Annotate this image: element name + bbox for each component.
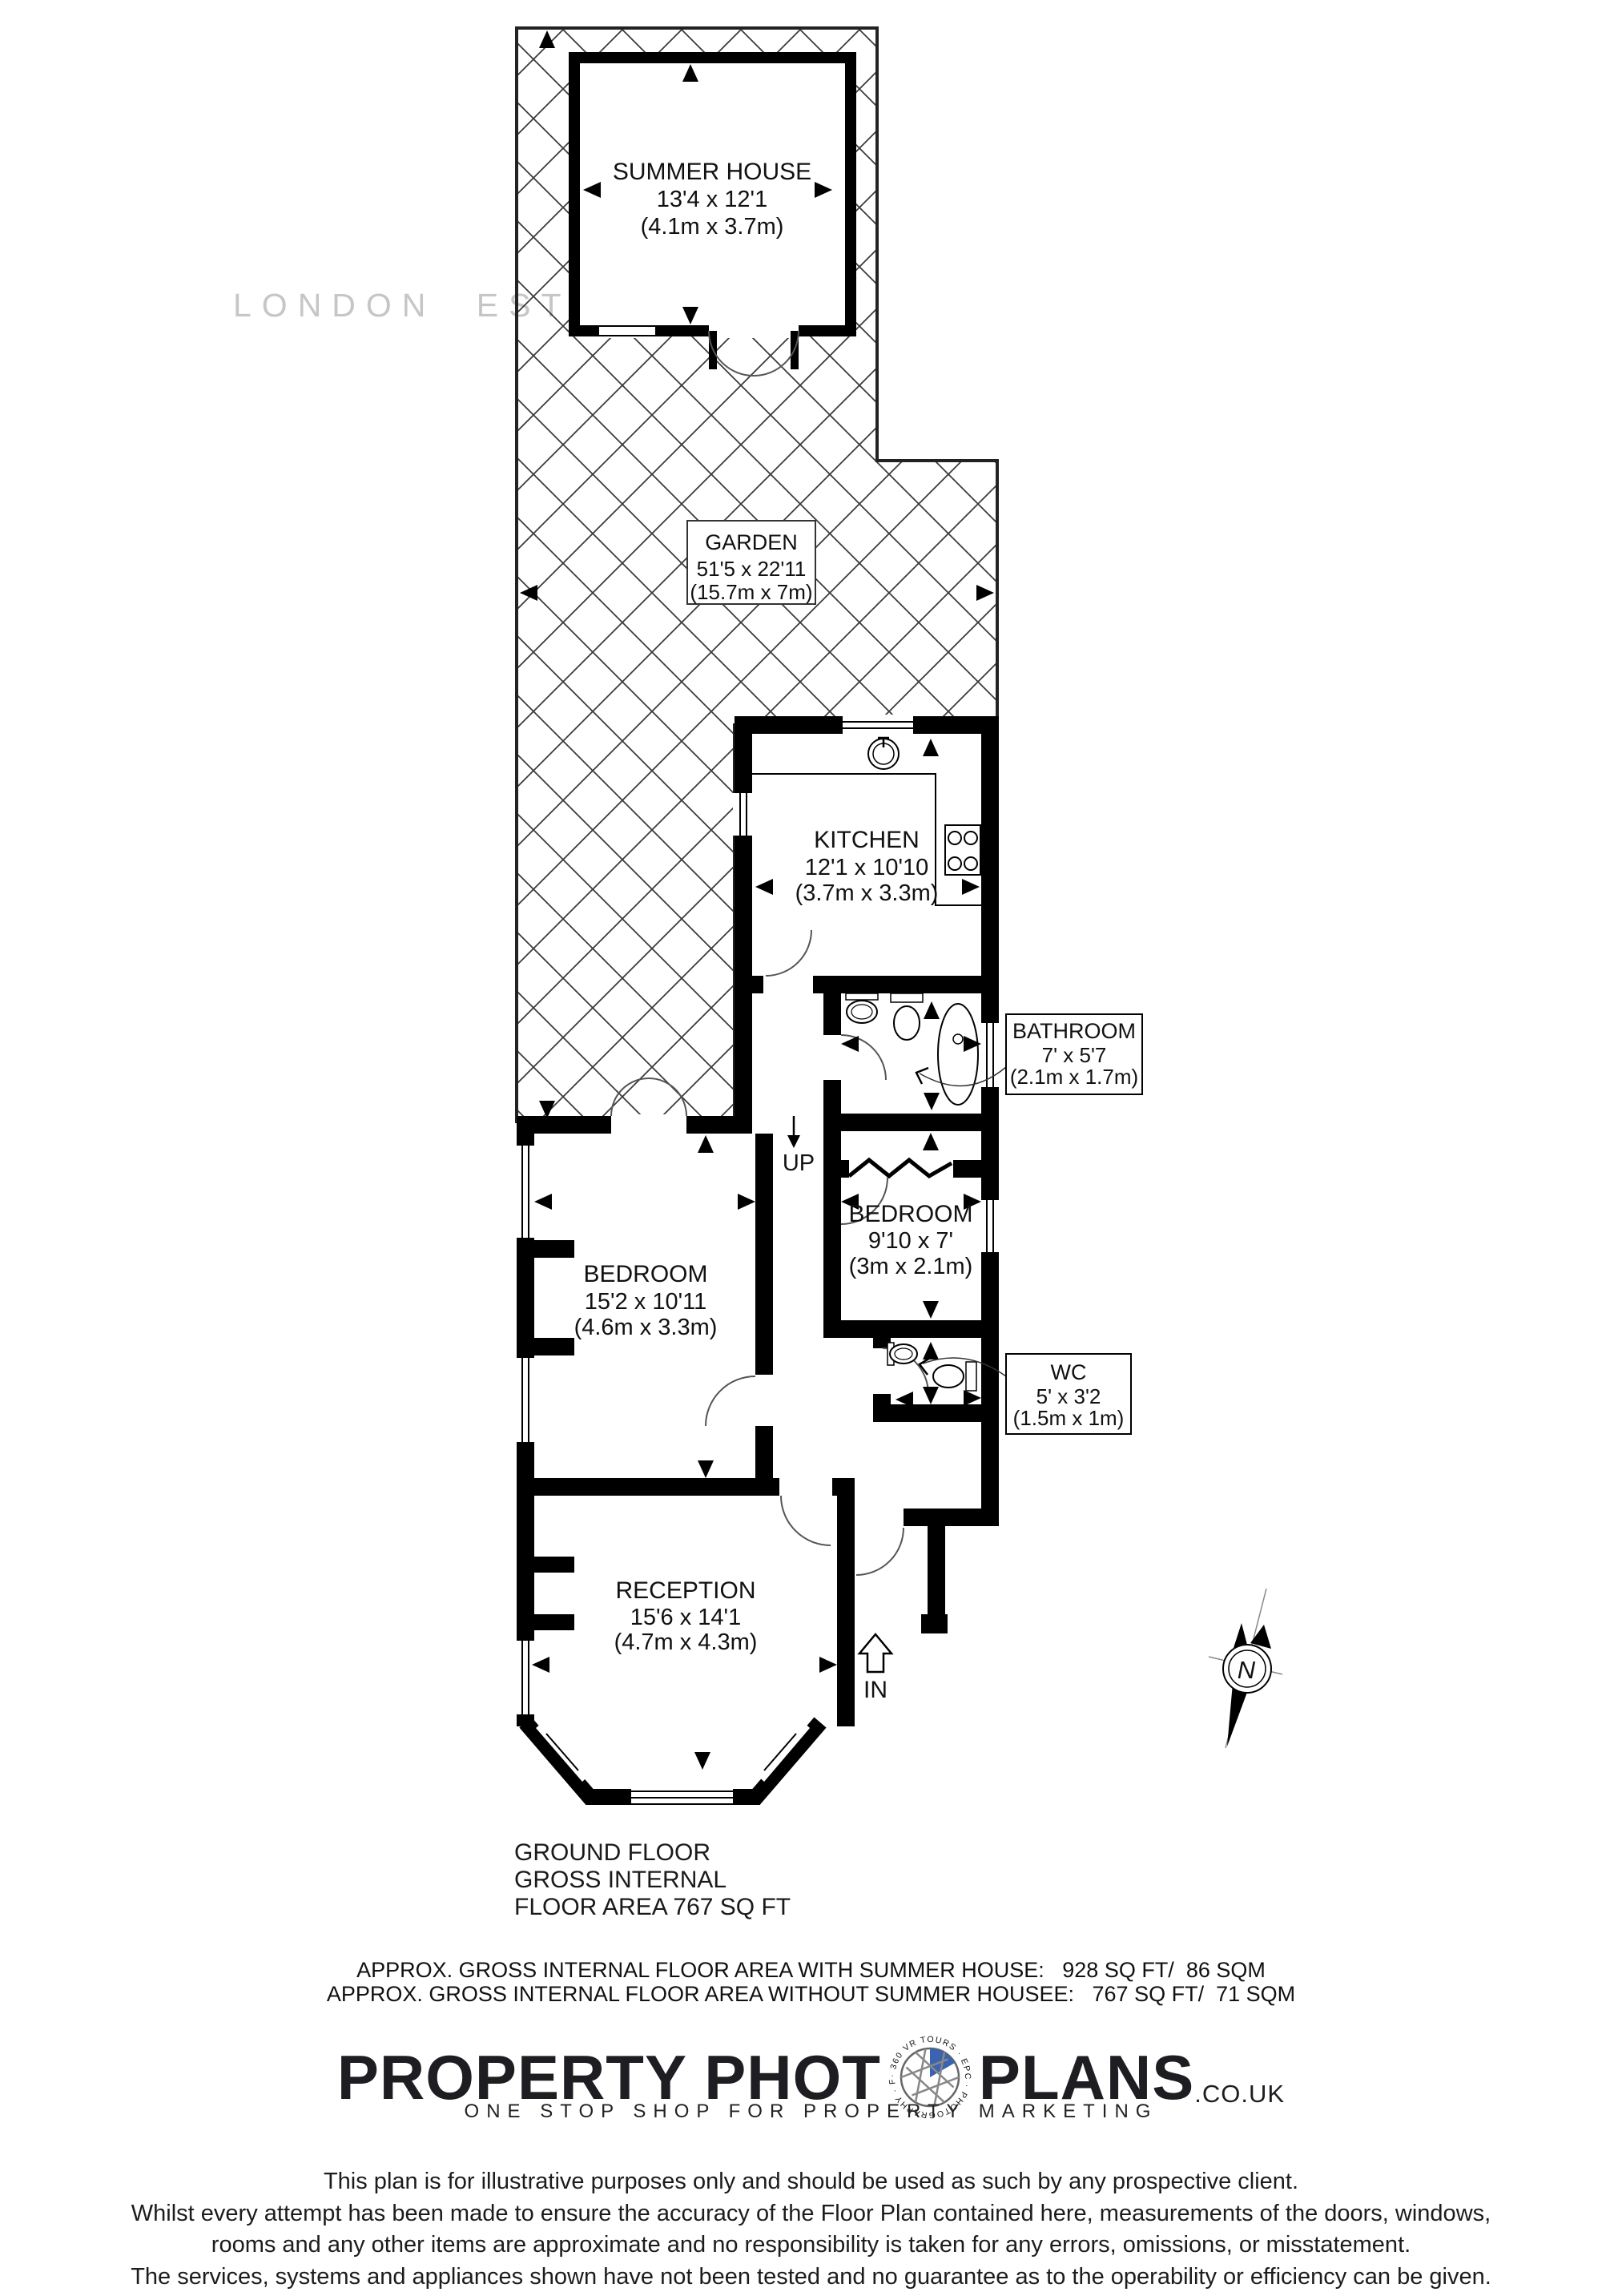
- bedroom-large-dims-ft: 15'2 x 10'11: [585, 1289, 706, 1315]
- bedroom-small-window: [980, 1200, 1000, 1252]
- bedroom-large-dims-m: (4.6m x 3.3m): [574, 1315, 718, 1340]
- bathroom-sink-icon: [846, 993, 878, 1023]
- up-label: UP: [783, 1150, 815, 1176]
- disclaimer-line: rooms and any other items are approximat…: [0, 2230, 1622, 2262]
- floor-summary: GROUND FLOOR GROSS INTERNAL FLOOR AREA 7…: [514, 1839, 791, 1921]
- north-label: N: [1238, 1656, 1256, 1684]
- floorplan-page: LONDON ESTATES SUM: [0, 0, 1622, 2296]
- disclaimer-line: The services, systems and appliances sho…: [0, 2262, 1622, 2294]
- wc-label: WC: [1051, 1360, 1087, 1384]
- reception-dims-m: (4.7m x 4.3m): [614, 1629, 758, 1655]
- approx-without-summer-house: APPROX. GROSS INTERNAL FLOOR AREA WITHOU…: [0, 1982, 1622, 2006]
- wc-toilet-icon: [933, 1362, 976, 1391]
- reception-window: [515, 1641, 536, 1714]
- floor-summary-line1: GROUND FLOOR: [514, 1839, 791, 1867]
- summer-house-door-opening: [709, 324, 799, 338]
- kitchen-dims-m: (3.7m x 3.3m): [795, 880, 939, 906]
- kitchen-side-window: [733, 793, 754, 836]
- garden-dims-ft: 51'5 x 22'11: [697, 557, 807, 581]
- garden-dims-m: (15.7m x 7m): [690, 580, 812, 604]
- floor-summary-line3: FLOOR AREA 767 SQ FT: [514, 1894, 791, 1921]
- wc-dims-m: (1.5m x 1m): [1013, 1406, 1125, 1430]
- summer-house-dims-m: (4.1m x 3.7m): [641, 214, 784, 240]
- kitchen-sink-icon: [868, 738, 899, 769]
- brand-word-right: PLANS: [979, 2046, 1194, 2109]
- bedroom-large-label: BEDROOM: [583, 1261, 707, 1287]
- disclaimer-line: Whilst every attempt has been made to en…: [0, 2198, 1622, 2230]
- bathroom-dims-m: (2.1m x 1.7m): [1010, 1065, 1138, 1089]
- summer-house-dims-ft: 13'4 x 12'1: [657, 187, 767, 212]
- floor-summary-line2: GROSS INTERNAL: [514, 1867, 791, 1894]
- french-door-opening: [606, 1114, 692, 1135]
- wc-dims-ft: 5' x 3'2: [1036, 1384, 1101, 1408]
- disclaimer-line: This plan is for illustrative purposes o…: [0, 2166, 1622, 2198]
- kitchen-label: KITCHEN: [814, 827, 920, 853]
- brand-word-left: PROPERTY PHOT: [337, 2046, 881, 2109]
- bedroom-small-dims-m: (3m x 2.1m): [849, 1254, 973, 1279]
- toilet-icon: [891, 993, 923, 1040]
- bath-icon: [938, 1004, 978, 1105]
- bedroom-large-window-1: [515, 1146, 536, 1238]
- bedroom-small-label: BEDROOM: [848, 1201, 972, 1227]
- summer-house-label: SUMMER HOUSE: [613, 159, 811, 185]
- approx-with-summer-house: APPROX. GROSS INTERNAL FLOOR AREA WITH S…: [0, 1958, 1622, 1982]
- disclaimer: This plan is for illustrative purposes o…: [0, 2166, 1622, 2293]
- reception-dims-ft: 15'6 x 14'1: [630, 1605, 741, 1630]
- summer-house: SUMMER HOUSE 13'4 x 12'1 (4.1m x 3.7m): [574, 58, 851, 376]
- bathroom-dims-ft: 7' x 5'7: [1042, 1043, 1107, 1067]
- kitchen-dims-ft: 12'1 x 10'10: [805, 855, 929, 880]
- reception-label: RECEPTION: [615, 1577, 755, 1604]
- porch-step: [921, 1614, 948, 1633]
- wc-sink-icon: [887, 1343, 917, 1365]
- kitchen-window: [843, 715, 913, 735]
- bedroom-small-dims-ft: 9'10 x 7': [868, 1228, 953, 1254]
- garden-label: GARDEN: [705, 530, 798, 554]
- hob-icon: [945, 825, 980, 875]
- bathroom-label: BATHROOM: [1012, 1019, 1136, 1043]
- in-label: IN: [863, 1677, 887, 1703]
- compass-icon: N: [1209, 1589, 1282, 1748]
- garden-label-box: GARDEN 51'5 x 22'11 (15.7m x 7m): [687, 521, 815, 604]
- bedroom-large-window-2: [515, 1358, 536, 1442]
- approx-areas: APPROX. GROSS INTERNAL FLOOR AREA WITH S…: [0, 1958, 1622, 2006]
- brand-tagline: ONE STOP SHOP FOR PROPERTY MARKETING: [0, 2101, 1622, 2123]
- floorplan-drawing: SUMMER HOUSE 13'4 x 12'1 (4.1m x 3.7m) G…: [0, 0, 1622, 2296]
